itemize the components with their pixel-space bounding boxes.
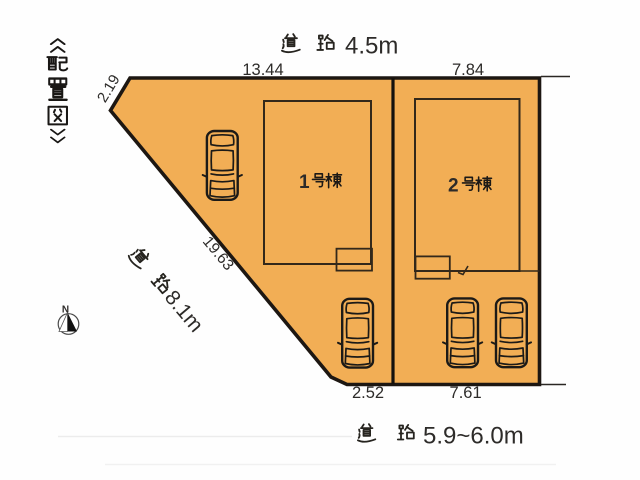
svg-text:5.9~6.0m: 5.9~6.0m bbox=[423, 423, 524, 450]
svg-text:2: 2 bbox=[448, 176, 459, 197]
svg-text:13.44: 13.44 bbox=[242, 61, 283, 79]
svg-text:4.5m: 4.5m bbox=[345, 33, 398, 60]
svg-text:7.84: 7.84 bbox=[452, 61, 484, 79]
svg-text:1: 1 bbox=[299, 172, 310, 193]
svg-text:N: N bbox=[62, 305, 69, 316]
svg-text:7.61: 7.61 bbox=[450, 384, 482, 402]
svg-text:2.52: 2.52 bbox=[352, 384, 384, 402]
